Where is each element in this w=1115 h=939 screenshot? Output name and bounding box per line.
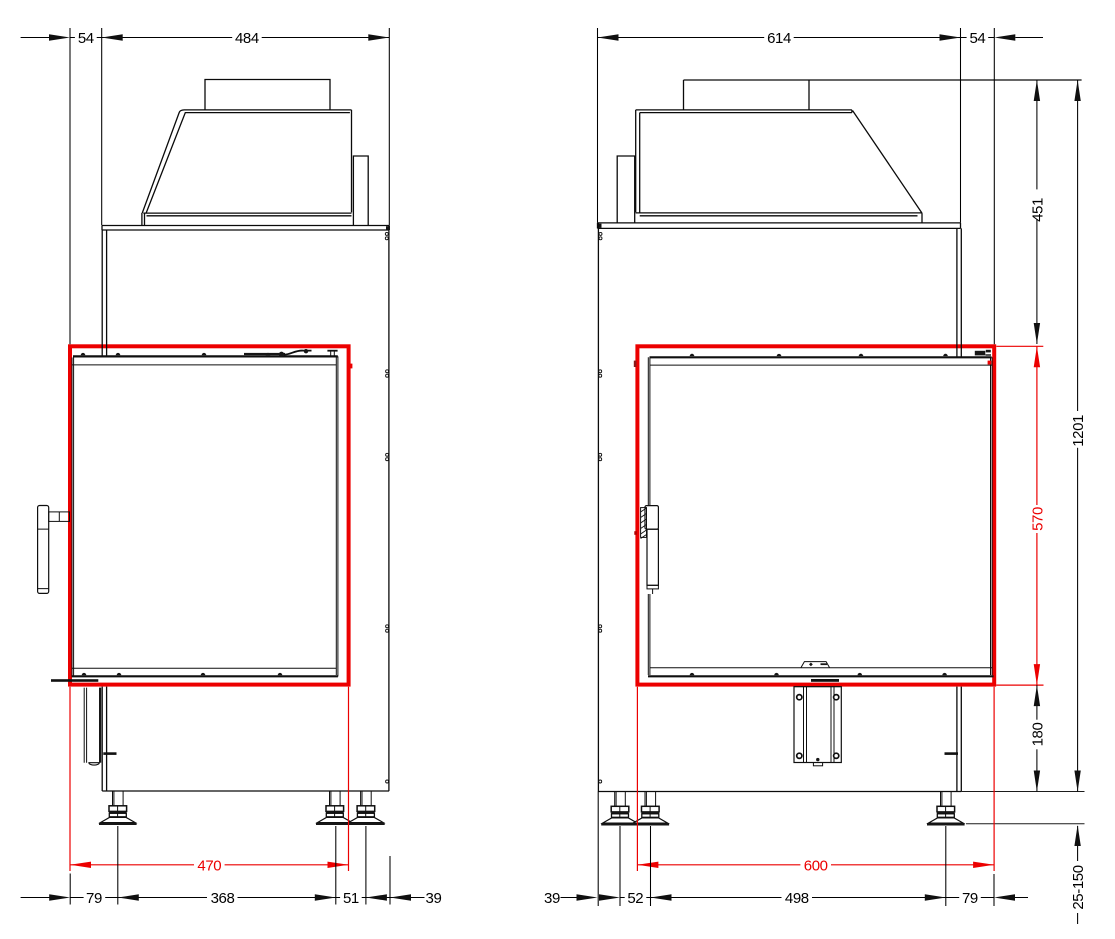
- svg-text:54: 54: [969, 30, 985, 47]
- svg-text:498: 498: [785, 890, 809, 907]
- svg-text:614: 614: [767, 30, 791, 47]
- svg-text:180: 180: [1030, 723, 1047, 747]
- svg-text:368: 368: [211, 890, 235, 907]
- svg-text:39: 39: [426, 890, 442, 907]
- svg-text:484: 484: [235, 30, 259, 47]
- svg-text:39: 39: [544, 890, 560, 907]
- svg-text:470: 470: [197, 858, 221, 875]
- svg-text:1201: 1201: [1070, 415, 1087, 447]
- svg-text:451: 451: [1030, 198, 1047, 222]
- svg-text:600: 600: [804, 858, 828, 875]
- svg-text:51: 51: [343, 890, 359, 907]
- svg-text:79: 79: [962, 890, 978, 907]
- svg-text:52: 52: [627, 890, 643, 907]
- svg-text:79: 79: [86, 890, 102, 907]
- svg-text:25-150: 25-150: [1070, 865, 1087, 909]
- svg-text:570: 570: [1030, 507, 1047, 531]
- svg-text:54: 54: [78, 30, 94, 47]
